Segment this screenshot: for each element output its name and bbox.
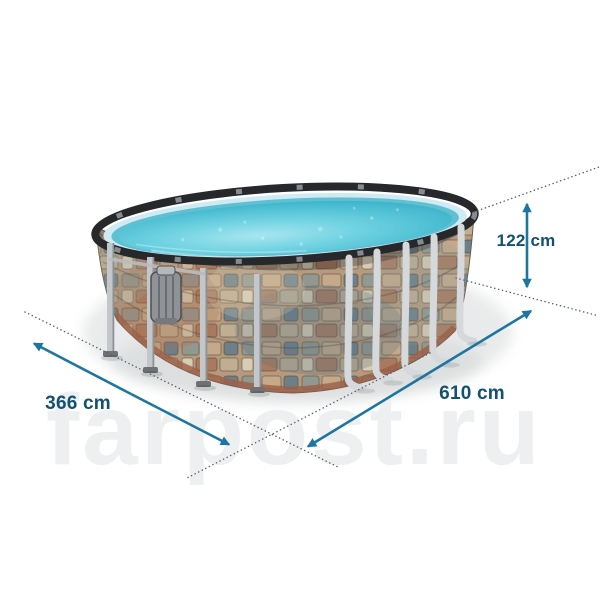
- length-dimension-arrow: [308, 311, 531, 447]
- extension-line-height-top: [474, 167, 599, 212]
- length-dimension-label: 610 cm: [439, 383, 505, 404]
- dimension-annotations: 122 cm 366 cm 610 cm: [0, 0, 600, 600]
- extension-line-length: [185, 353, 430, 479]
- height-dimension-label: 122 cm: [497, 231, 556, 250]
- width-dimension-label: 366 cm: [45, 393, 111, 414]
- extension-line-width: [25, 312, 338, 467]
